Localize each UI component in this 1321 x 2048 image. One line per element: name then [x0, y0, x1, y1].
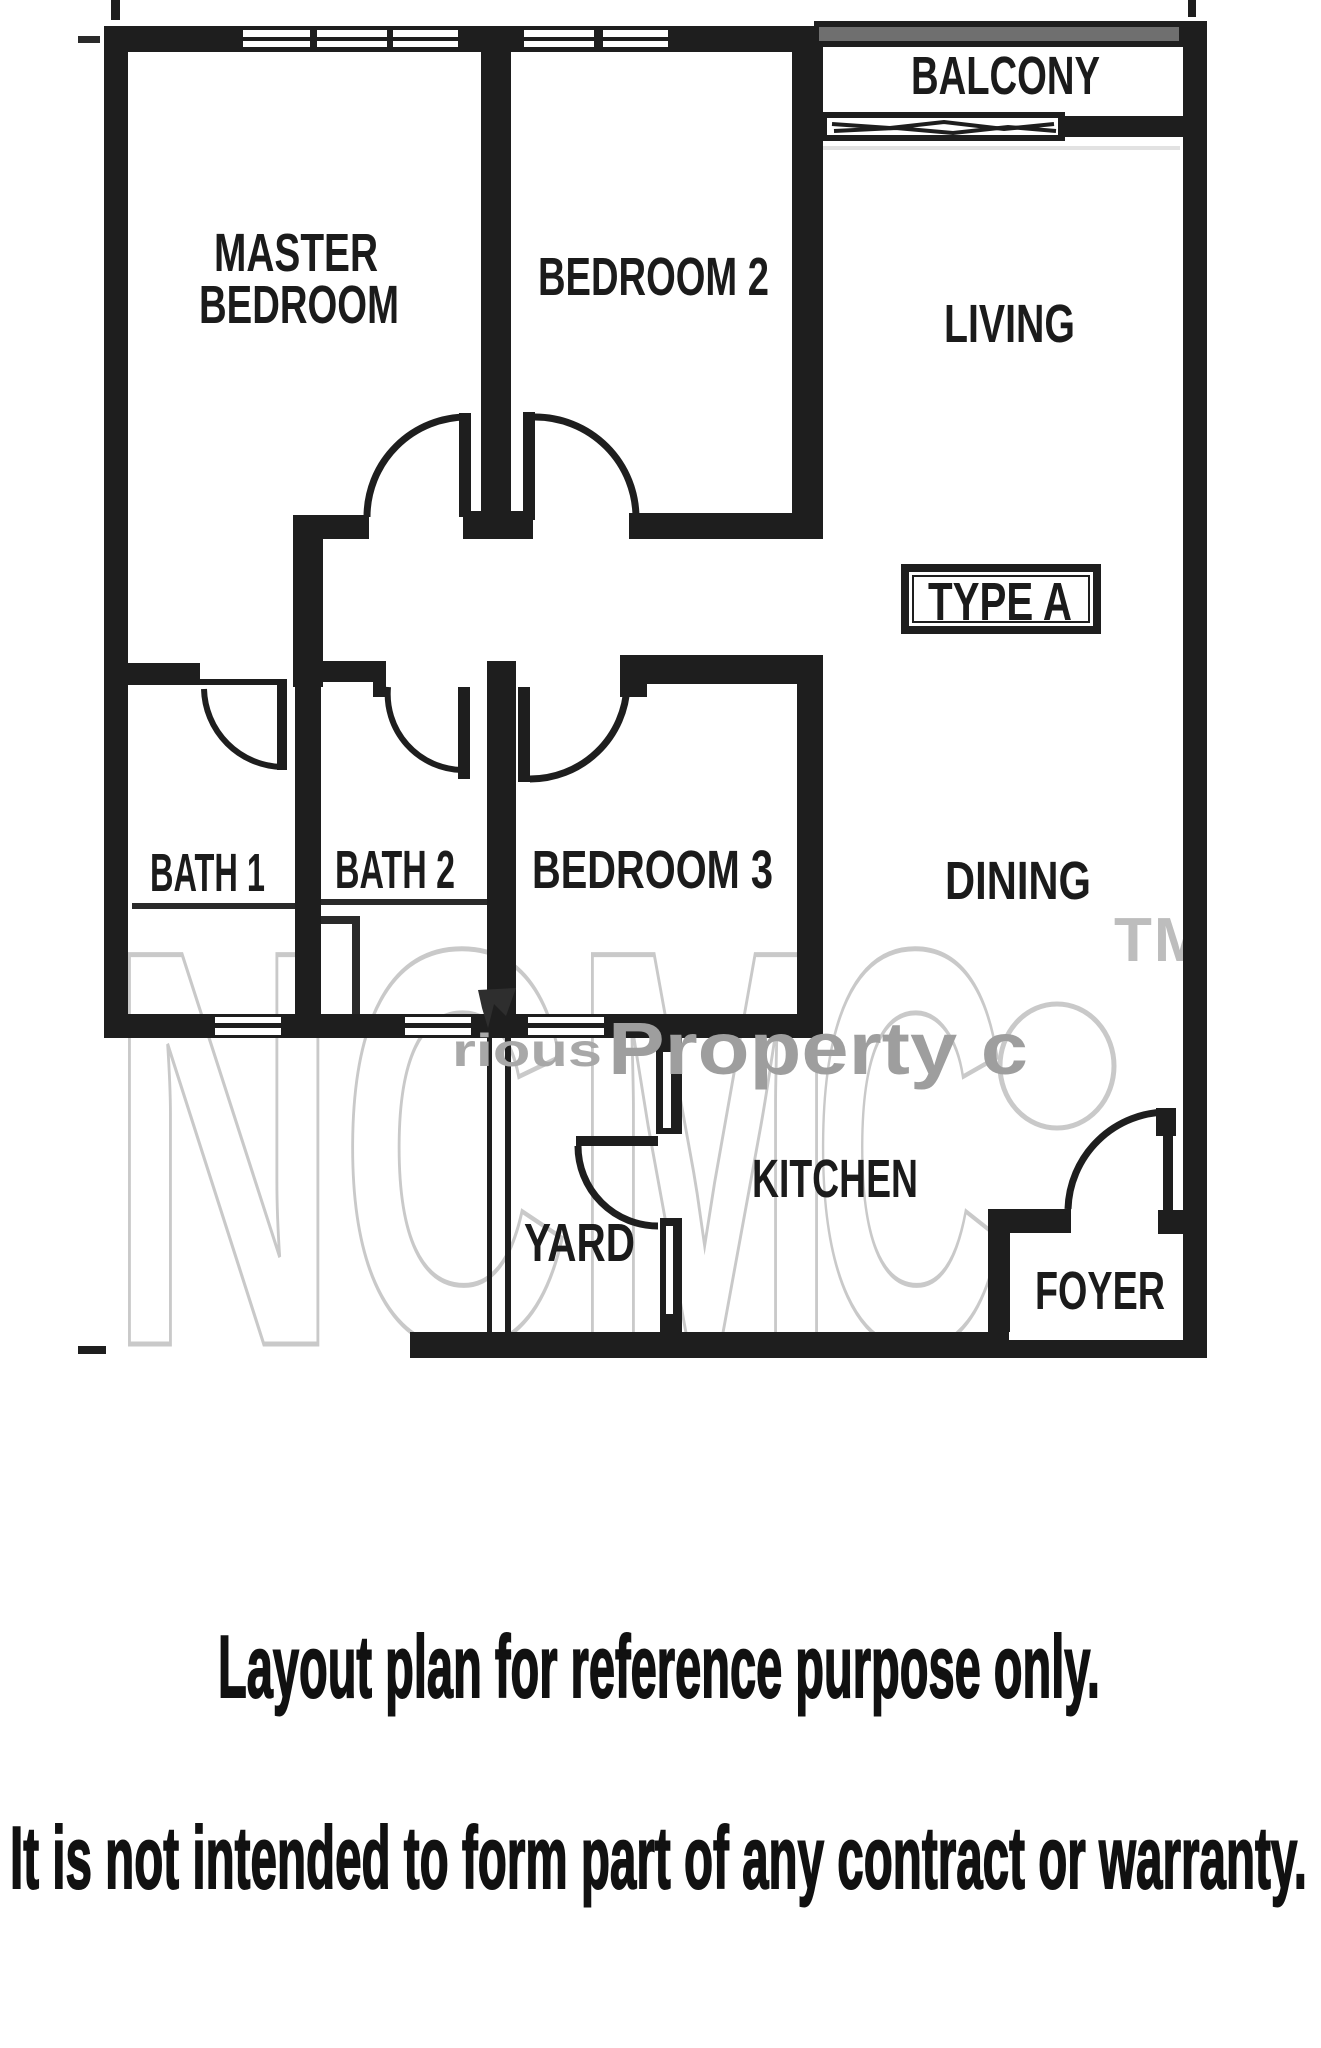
svg-text:BALCONY: BALCONY — [911, 46, 1100, 106]
svg-text:Property c: Property c — [608, 1007, 1028, 1090]
svg-text:BATH 2: BATH 2 — [335, 840, 455, 900]
svg-text:BEDROOM 3: BEDROOM 3 — [532, 840, 773, 900]
svg-text:KITCHEN: KITCHEN — [752, 1149, 918, 1209]
svg-text:DINING: DINING — [945, 851, 1091, 911]
svg-text:MASTER: MASTER — [214, 223, 378, 283]
svg-text:FOYER: FOYER — [1035, 1261, 1165, 1321]
svg-text:BEDROOM 2: BEDROOM 2 — [538, 247, 769, 307]
svg-text:Layout plan for reference purp: Layout plan for reference purpose only. — [218, 1617, 1100, 1716]
svg-text:NCM: NCM — [108, 832, 838, 1464]
svg-text:YARD: YARD — [524, 1213, 635, 1273]
svg-text:C: C — [812, 832, 1007, 1464]
svg-text:It is not intended to form par: It is not intended to form part of any c… — [10, 1808, 1307, 1907]
svg-text:LIVING: LIVING — [944, 294, 1075, 354]
svg-text:TYPE A: TYPE A — [928, 572, 1072, 632]
svg-text:BEDROOM: BEDROOM — [199, 275, 399, 335]
svg-text:rious: rious — [452, 1024, 602, 1076]
svg-text:BATH 1: BATH 1 — [150, 843, 265, 903]
